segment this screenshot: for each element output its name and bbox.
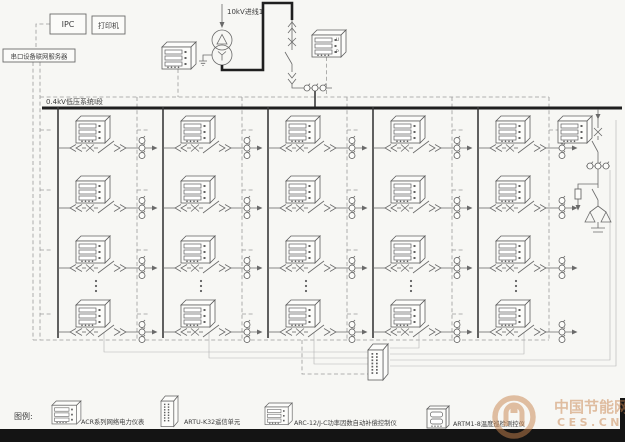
arc-controller-icon — [265, 403, 292, 425]
power-monitoring-one-line-diagram: IPC 打印机 串口设备联网服务器 10kV进线1 — [0, 0, 625, 442]
legend-title: 图例: — [14, 411, 33, 421]
legend: 图例: ACR系列网络电力仪表 ARTU-K32遥信单元 ARC-12/J-C功… — [14, 396, 526, 428]
incoming-transformer: 10kV进线1 U — [162, 3, 346, 107]
feeder-column-3 — [268, 107, 368, 343]
main-bus: 0.4kV低压系统Ⅰ段 — [42, 97, 622, 108]
pf-controller-icon — [558, 116, 592, 143]
bus-label: 0.4kV低压系统Ⅰ段 — [46, 97, 103, 106]
legend-item-4-label: ARTM1-8温度巡检测控仪 — [453, 419, 526, 428]
printer-label: 打印机 — [98, 21, 119, 30]
capacitor-feeder — [558, 109, 611, 232]
artu-unit-legend-icon — [161, 396, 178, 427]
watermark-domain: CES.CN — [557, 416, 623, 429]
feeder-column-2 — [163, 107, 263, 343]
comm-stubs — [40, 130, 464, 314]
discharge-branch — [575, 184, 598, 211]
serial-server-label: 串口设备联网服务器 — [11, 52, 68, 61]
meter-display-p: P — [336, 49, 339, 55]
incoming-arrow-icon — [220, 22, 225, 28]
acr-meter-icon — [52, 401, 81, 424]
multifunction-meter: U P — [312, 30, 346, 57]
scada-host: IPC 打印机 串口设备联网服务器 — [3, 14, 125, 62]
legend-item-3-label: ARC-12/J-C功率因数自动补偿控制仪 — [294, 418, 397, 427]
legend-item-1-label: ACR系列网络电力仪表 — [81, 417, 145, 426]
watermark-title: 中国节能网 — [554, 398, 625, 416]
diagram-canvas: IPC 打印机 串口设备联网服务器 10kV进线1 — [0, 0, 625, 442]
feeder-column-1 — [58, 107, 158, 343]
transformer-primary-icon — [212, 30, 232, 50]
capacitor-bank-icon — [585, 212, 611, 222]
bottom-border-bar — [0, 429, 625, 442]
artm-instrument-icon — [427, 406, 449, 428]
legend-item-2-label: ARTU-K32遥信单元 — [184, 417, 241, 426]
incoming-line-label: 10kV进线1 — [227, 7, 263, 16]
ground-icon — [199, 55, 212, 66]
fuse-icon — [575, 189, 581, 199]
meter-display-u: U — [336, 37, 339, 43]
feeder-column-4 — [373, 107, 473, 343]
ipc-label: IPC — [62, 20, 75, 29]
incoming-meter-icon — [162, 42, 196, 69]
artu-unit-icon — [368, 344, 388, 380]
multifunction-meter-icon — [312, 30, 346, 57]
